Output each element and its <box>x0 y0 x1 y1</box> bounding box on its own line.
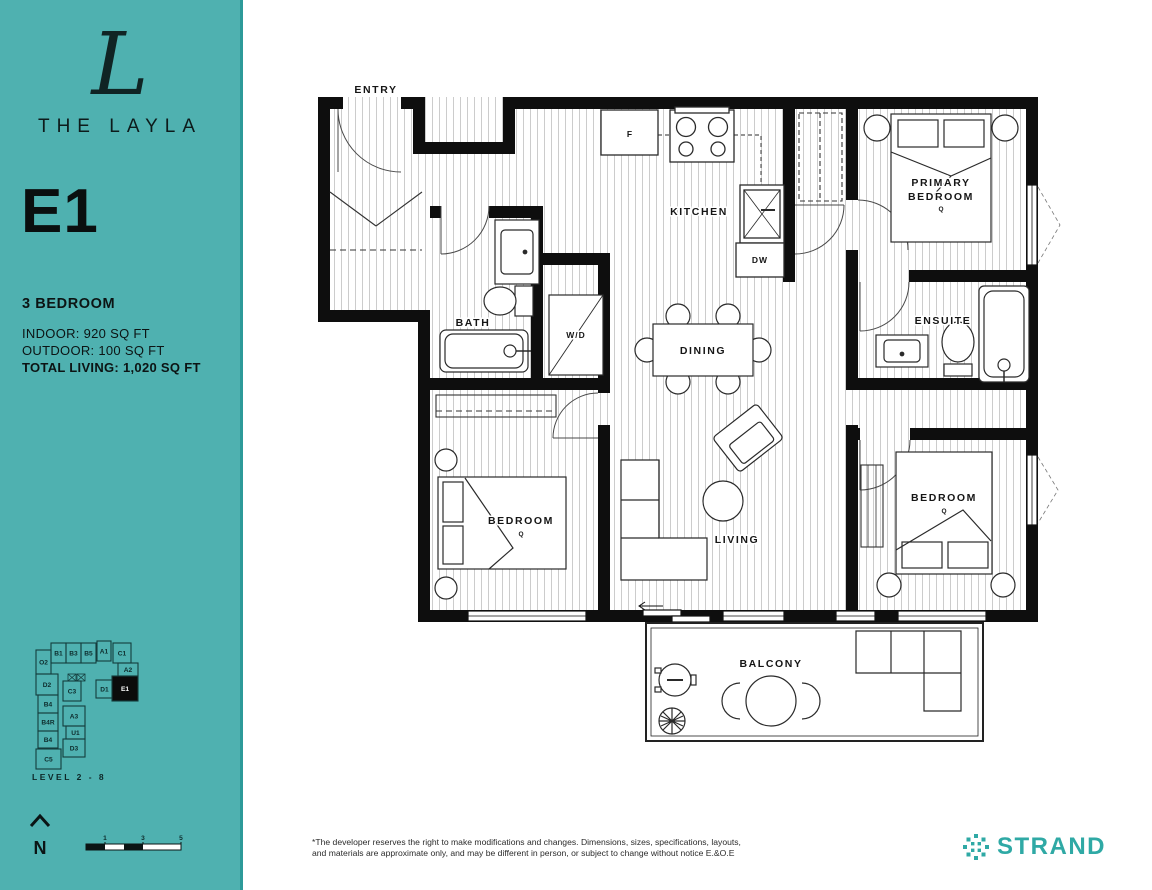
appliance-label-wd: W/D <box>566 330 586 340</box>
bed-size-right: Q <box>941 508 946 515</box>
keyplan-unit-label: C1 <box>118 651 127 658</box>
unit-code: E1 <box>21 176 99 247</box>
strand-icon <box>962 833 990 861</box>
keyplan-unit-label: E1 <box>121 686 129 693</box>
keyplan-unit-label: A1 <box>100 649 109 656</box>
keyplan-unit-label: C3 <box>68 689 77 696</box>
room-label-kitchen: KITCHEN <box>670 206 728 218</box>
strand-logo: STRAND <box>962 833 1106 861</box>
coffee-table <box>703 481 743 521</box>
keyplan-level-label: LEVEL 2 - 8 <box>32 772 106 782</box>
outdoor-area: OUTDOOR: 100 SQ FT <box>22 343 165 358</box>
keyplan-unit-label: D2 <box>43 682 52 689</box>
room-label-balcony: BALCONY <box>739 658 802 670</box>
plant <box>659 708 685 734</box>
layla-script-logo: L <box>0 22 240 108</box>
ensuite-toilet <box>942 322 974 376</box>
bed-size-primary: Q <box>938 206 943 213</box>
stove <box>670 107 734 162</box>
outdoor-sofa <box>856 631 961 711</box>
scale-tick-5: 5 <box>179 835 183 842</box>
bed-size-left: Q <box>518 531 523 538</box>
keyplan-unit-label: C5 <box>44 757 53 764</box>
keyplan-unit-label: D3 <box>70 746 79 753</box>
room-label-bedroom-right: BEDROOM <box>911 492 977 504</box>
keyplan-unit-label: B4 <box>44 737 53 744</box>
north-arrow-icon: N <box>26 812 56 862</box>
keyplan-unit-label: B4 <box>44 702 53 709</box>
unit-type: 3 BEDROOM <box>22 296 115 312</box>
balcony-furniture <box>655 631 961 734</box>
room-label-bath: BATH <box>456 317 491 329</box>
strand-wordmark: STRAND <box>997 833 1106 861</box>
scale-tick-3: 3 <box>141 835 145 842</box>
floorplan-sheet: L THE LAYLA E1 3 BEDROOM INDOOR: 920 SQ … <box>0 0 1152 890</box>
keyplan-unit-label: B3 <box>69 651 78 658</box>
room-label-primary-1: PRIMARY <box>911 177 970 189</box>
keyplan-unit-label: B5 <box>84 651 93 658</box>
room-label-ensuite: ENSUITE <box>915 315 972 327</box>
room-label-entry: ENTRY <box>354 84 397 96</box>
disclaimer-line-2: and materials are approximate only, and … <box>312 848 741 859</box>
scale-tick-1: 1 <box>103 835 107 842</box>
floor-mask <box>303 322 418 622</box>
keyplan: B1B3B5A1C1O2A2D2C3D1E1B4B4RB4A3U1D3C5 <box>28 640 148 772</box>
scale-bar: 1 3 5 <box>84 832 190 854</box>
bathtub <box>440 330 531 372</box>
keyplan-unit-label: U1 <box>71 730 80 737</box>
floor-plan: ENTRY KITCHEN F DW BATH W/D PRIMARY BEDR… <box>303 80 1063 775</box>
keyplan-unit-label: D1 <box>100 687 109 694</box>
keyplan-unit-label: B4R <box>41 720 54 727</box>
appliance-label-fridge: F <box>627 129 633 139</box>
patio-table <box>722 676 820 726</box>
total-area: TOTAL LIVING: 1,020 SQ FT <box>22 360 201 375</box>
indoor-area: INDOOR: 920 SQ FT <box>22 326 150 341</box>
keyplan-stair-core <box>68 674 85 681</box>
kitchen-sink <box>740 185 784 243</box>
bbq <box>655 664 696 696</box>
appliance-label-dw: DW <box>752 255 768 265</box>
room-label-living: LIVING <box>715 534 760 546</box>
bath-toilet <box>484 286 533 316</box>
disclaimer: *The developer reserves the right to mak… <box>312 837 741 859</box>
keyplan-unit-label: A2 <box>124 667 133 674</box>
sidebar: L THE LAYLA E1 3 BEDROOM INDOOR: 920 SQ … <box>0 0 243 890</box>
north-label: N <box>34 838 47 858</box>
ensuite-tub <box>979 286 1029 382</box>
room-label-bedroom-left: BEDROOM <box>488 515 554 527</box>
room-label-dining: DINING <box>680 345 726 357</box>
keyplan-unit-label: A3 <box>70 714 79 721</box>
room-label-primary-2: BEDROOM <box>908 191 974 203</box>
disclaimer-line-1: *The developer reserves the right to mak… <box>312 837 741 848</box>
keyplan-unit-label: B1 <box>54 651 63 658</box>
brand-name: THE LAYLA <box>0 116 240 138</box>
keyplan-unit-label: O2 <box>39 660 48 667</box>
